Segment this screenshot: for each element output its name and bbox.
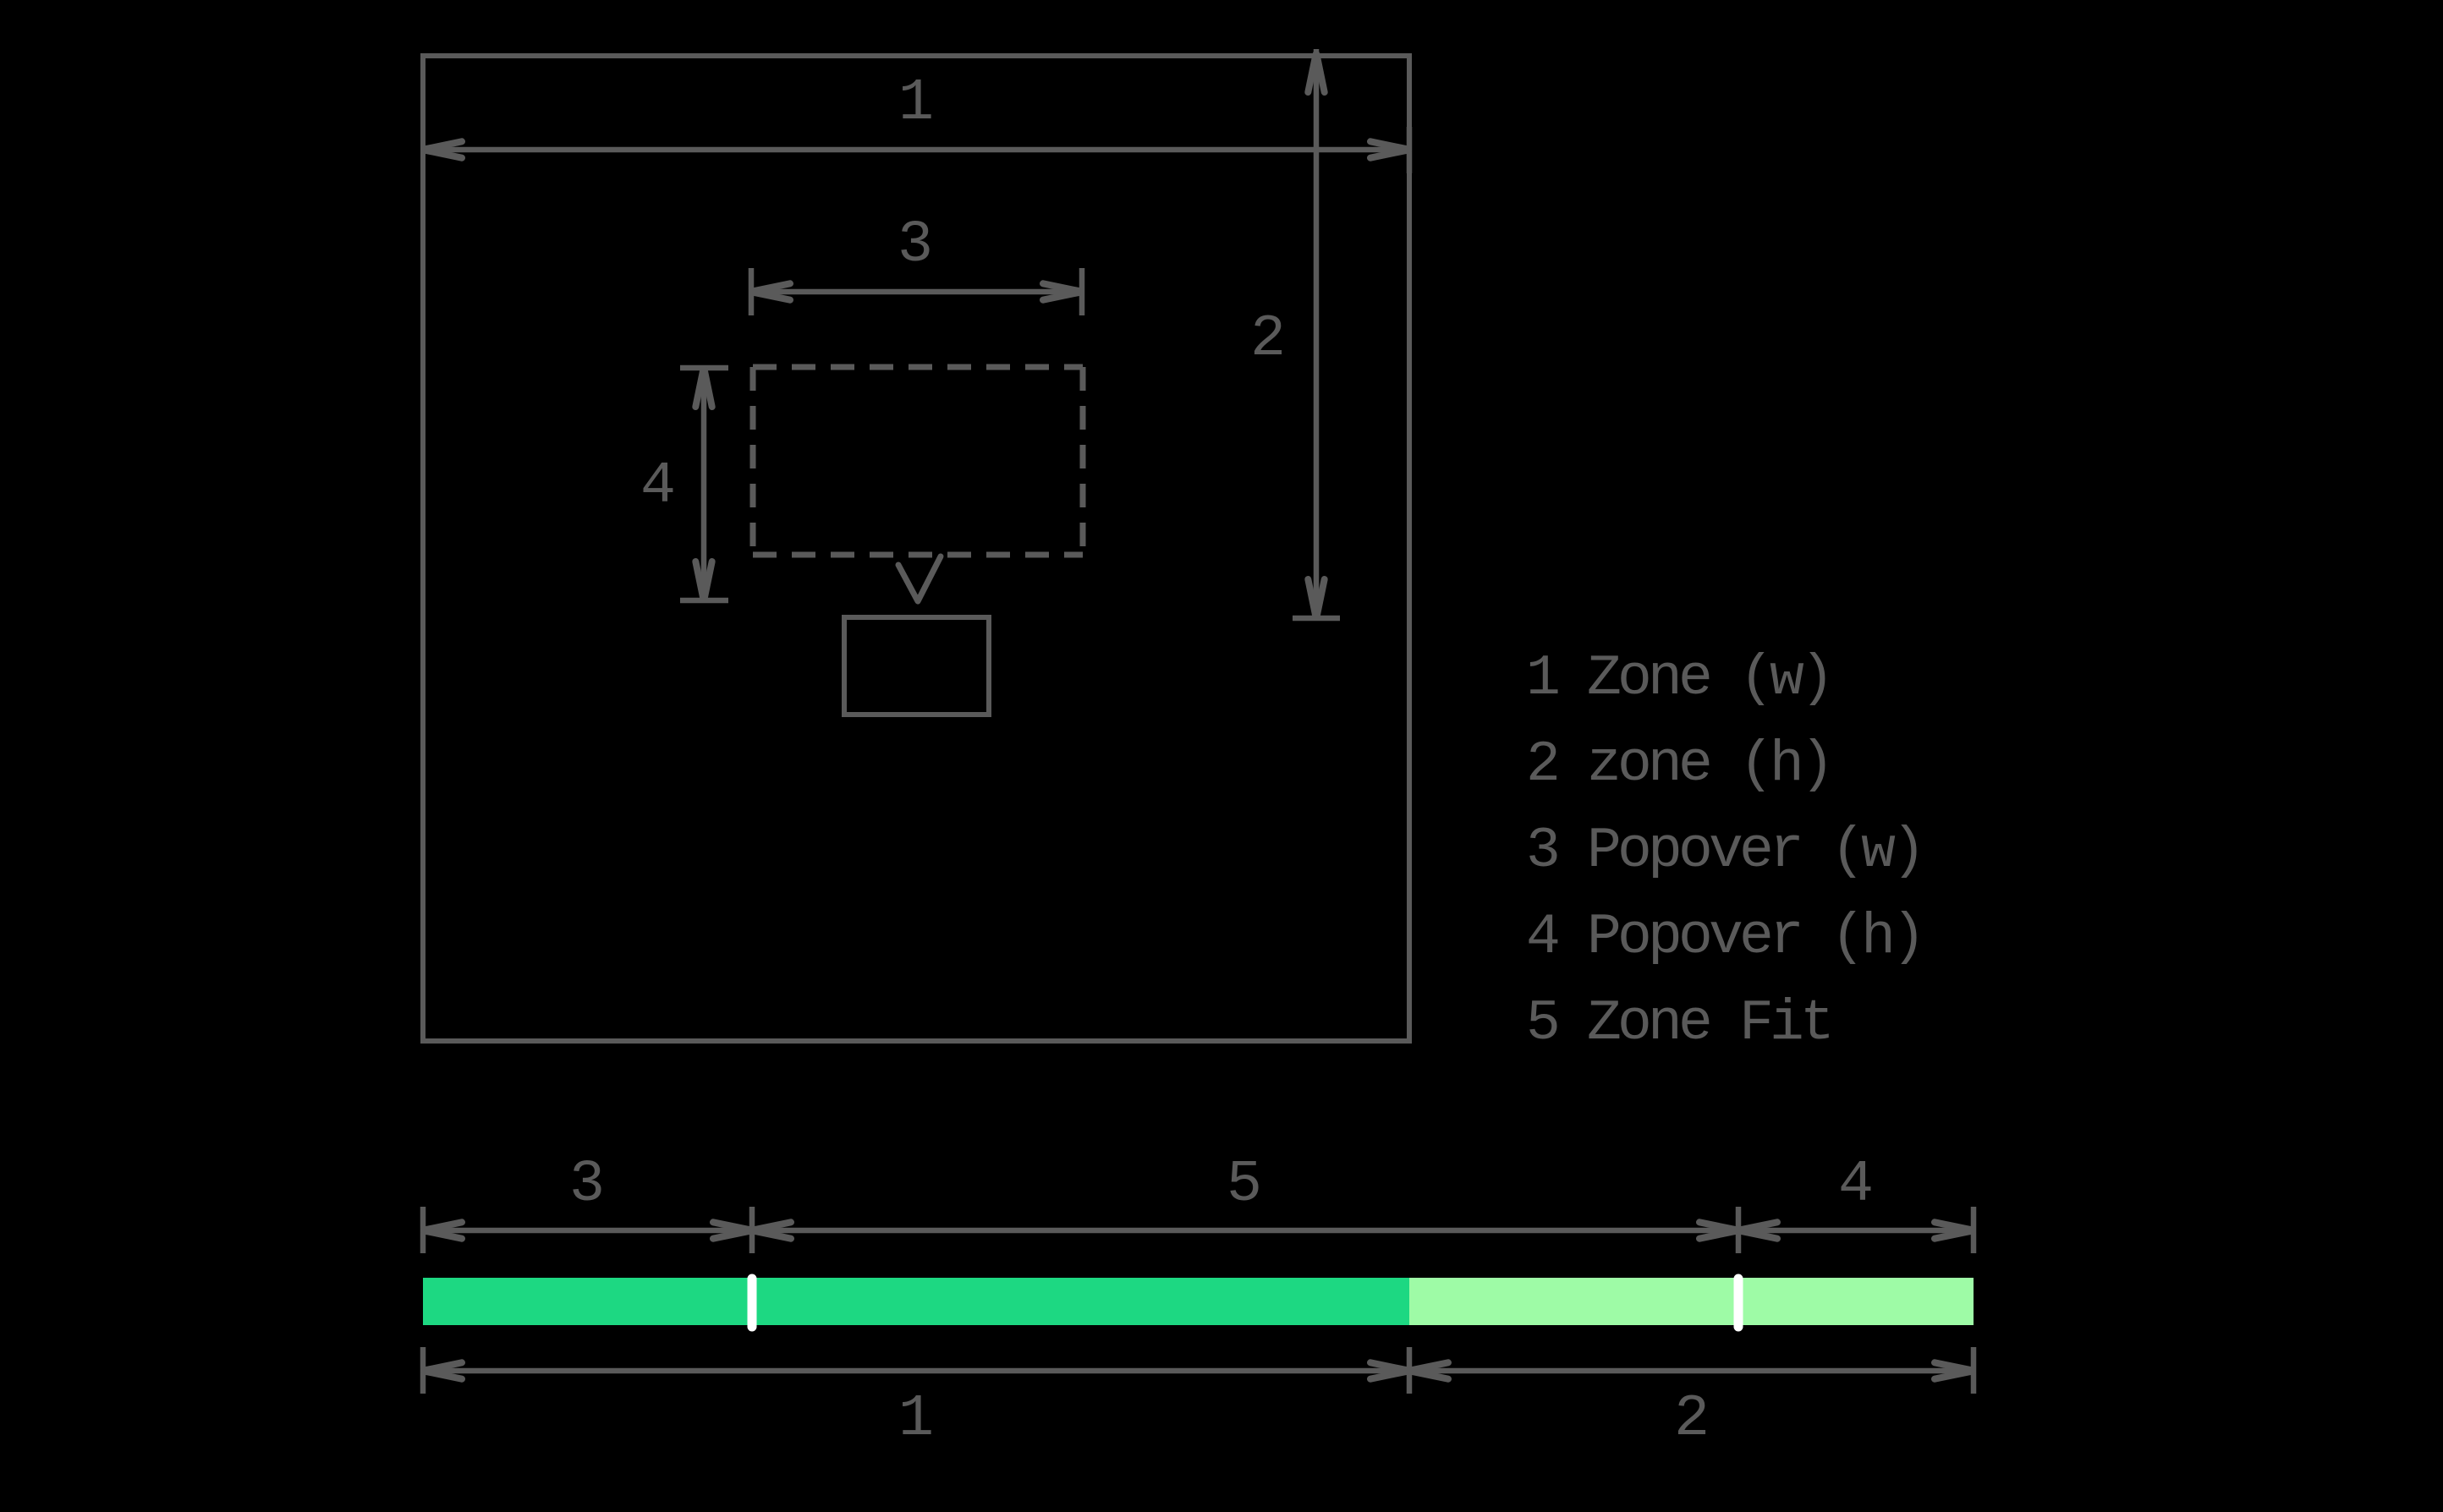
svg-text:1: 1 (898, 70, 934, 137)
svg-text:3: 3 (569, 1152, 605, 1219)
svg-text:4: 4 (1838, 1152, 1874, 1219)
svg-text:4 Popover (h): 4 Popover (h) (1526, 905, 1922, 970)
svg-text:3 Popover (w): 3 Popover (w) (1526, 819, 1922, 884)
svg-text:2: 2 (1250, 306, 1286, 373)
svg-text:1: 1 (898, 1386, 934, 1453)
svg-text:1 Zone (w): 1 Zone (w) (1526, 646, 1831, 711)
svg-text:4: 4 (640, 453, 676, 520)
svg-text:5 Zone Fit: 5 Zone Fit (1526, 991, 1831, 1056)
svg-text:5: 5 (1227, 1152, 1262, 1219)
svg-text:2: 2 (1674, 1386, 1710, 1453)
svg-text:2 zone (h): 2 zone (h) (1526, 732, 1831, 797)
svg-text:3: 3 (898, 212, 933, 279)
